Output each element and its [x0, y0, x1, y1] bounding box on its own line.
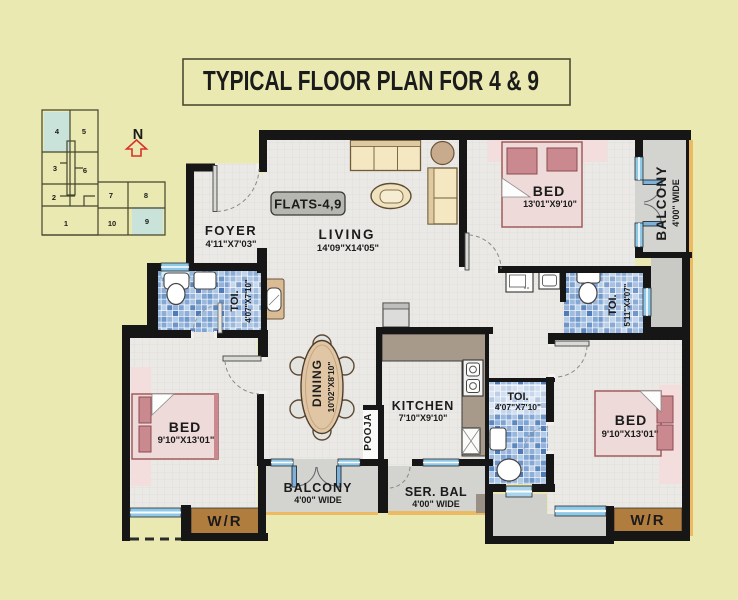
svg-text:10'02"X8'10": 10'02"X8'10": [326, 362, 336, 413]
svg-text:4'07"X7'10": 4'07"X7'10": [495, 402, 541, 412]
svg-text:8: 8: [144, 191, 148, 200]
svg-text:4'00" WIDE: 4'00" WIDE: [671, 179, 681, 226]
svg-text:2: 2: [52, 193, 56, 202]
svg-text:6: 6: [83, 166, 87, 175]
svg-text:3: 3: [53, 164, 57, 173]
svg-text:BALCONY: BALCONY: [284, 481, 353, 495]
svg-text:13'01"X9'10": 13'01"X9'10": [523, 199, 577, 209]
svg-text:W/R: W/R: [207, 513, 242, 530]
svg-text:BED: BED: [169, 419, 202, 435]
svg-text:10: 10: [108, 219, 116, 228]
svg-text:4'07"X7'10": 4'07"X7'10": [244, 279, 253, 323]
svg-text:FOYER: FOYER: [205, 223, 257, 238]
svg-text:5'11"X4'07": 5'11"X4'07": [623, 283, 632, 326]
svg-text:5: 5: [82, 127, 86, 136]
svg-text:4'00" WIDE: 4'00" WIDE: [294, 495, 341, 505]
svg-text:BED: BED: [533, 183, 566, 199]
svg-text:14'09"X14'05": 14'09"X14'05": [317, 243, 379, 254]
svg-text:SER. BAL: SER. BAL: [405, 485, 467, 499]
svg-text:TYPICAL FLOOR PLAN FOR 4 & 9: TYPICAL FLOOR PLAN FOR 4 & 9: [203, 65, 539, 96]
svg-text:DINING: DINING: [310, 359, 324, 407]
svg-text:TOI.: TOI.: [229, 290, 241, 311]
svg-text:POOJA: POOJA: [363, 413, 374, 451]
svg-text:TOI.: TOI.: [607, 294, 619, 315]
svg-text:1: 1: [64, 219, 68, 228]
svg-text:LIVING: LIVING: [318, 227, 375, 242]
svg-text:BED: BED: [615, 412, 648, 428]
svg-text:FLATS-4,9: FLATS-4,9: [274, 197, 342, 212]
svg-text:7'10"X9'10": 7'10"X9'10": [399, 413, 448, 423]
svg-text:7: 7: [109, 191, 113, 200]
svg-text:4'00" WIDE: 4'00" WIDE: [412, 499, 459, 509]
svg-text:9: 9: [145, 217, 149, 226]
svg-text:9'10"X13'01": 9'10"X13'01": [602, 429, 659, 440]
svg-text:KITCHEN: KITCHEN: [392, 399, 455, 413]
svg-text:4'11"X7'03": 4'11"X7'03": [205, 239, 256, 250]
svg-text:9'10"X13'01": 9'10"X13'01": [158, 435, 215, 446]
svg-text:BALCONY: BALCONY: [654, 165, 669, 240]
svg-text:W/R: W/R: [630, 512, 665, 529]
